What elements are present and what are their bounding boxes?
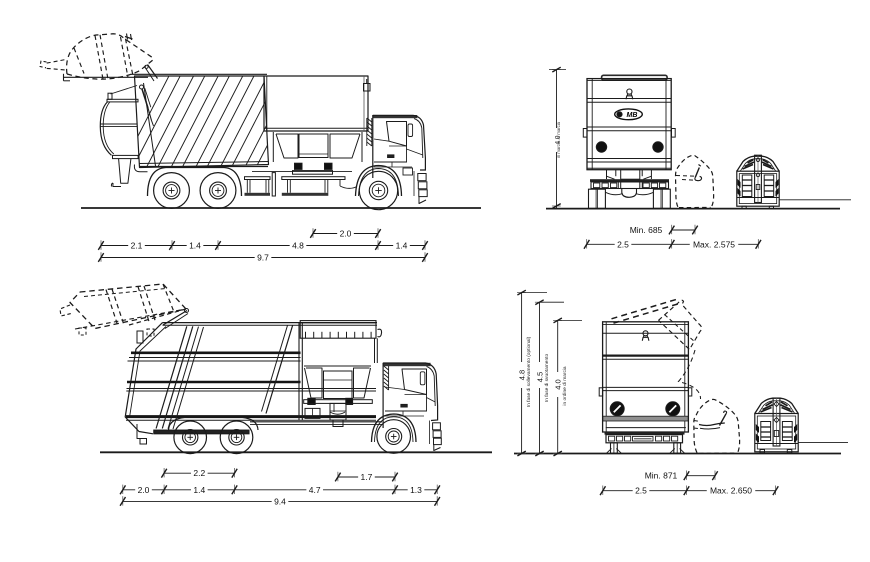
svg-text:MB: MB: [627, 112, 638, 119]
svg-text:1.4: 1.4: [396, 241, 408, 251]
svg-text:9.7: 9.7: [257, 253, 269, 263]
svg-text:Min. 685: Min. 685: [630, 225, 663, 235]
svg-text:in marcia: in marcia: [556, 121, 561, 139]
svg-text:2.2: 2.2: [193, 468, 205, 478]
svg-text:2.1: 2.1: [131, 241, 143, 251]
svg-text:1.4: 1.4: [189, 241, 201, 251]
svg-text:1.3: 1.3: [410, 485, 422, 495]
svg-text:4.0: 4.0: [554, 379, 563, 390]
svg-text:in marcia: in marcia: [556, 140, 561, 158]
svg-text:Max. 2.650: Max. 2.650: [710, 486, 752, 496]
svg-text:2.0: 2.0: [340, 229, 352, 239]
svg-text:In fase di svuotamento: In fase di svuotamento: [544, 354, 550, 403]
svg-text:Min. 871: Min. 871: [645, 471, 678, 481]
svg-text:4.5: 4.5: [535, 372, 544, 383]
svg-text:4.8: 4.8: [517, 370, 526, 381]
svg-text:2.0: 2.0: [138, 485, 150, 495]
svg-text:In fase di sollevamento (optio: In fase di sollevamento (optional): [526, 336, 532, 407]
svg-text:9.4: 9.4: [274, 496, 286, 506]
svg-text:in ordine di marcia: in ordine di marcia: [562, 366, 568, 406]
svg-text:Max. 2.575: Max. 2.575: [693, 239, 735, 249]
svg-text:4.7: 4.7: [309, 485, 321, 495]
svg-text:1.4: 1.4: [193, 485, 205, 495]
svg-text:4.8: 4.8: [292, 241, 304, 251]
svg-text:2.5: 2.5: [617, 239, 629, 249]
svg-text:1.7: 1.7: [361, 472, 373, 482]
svg-text:2.5: 2.5: [635, 486, 647, 496]
